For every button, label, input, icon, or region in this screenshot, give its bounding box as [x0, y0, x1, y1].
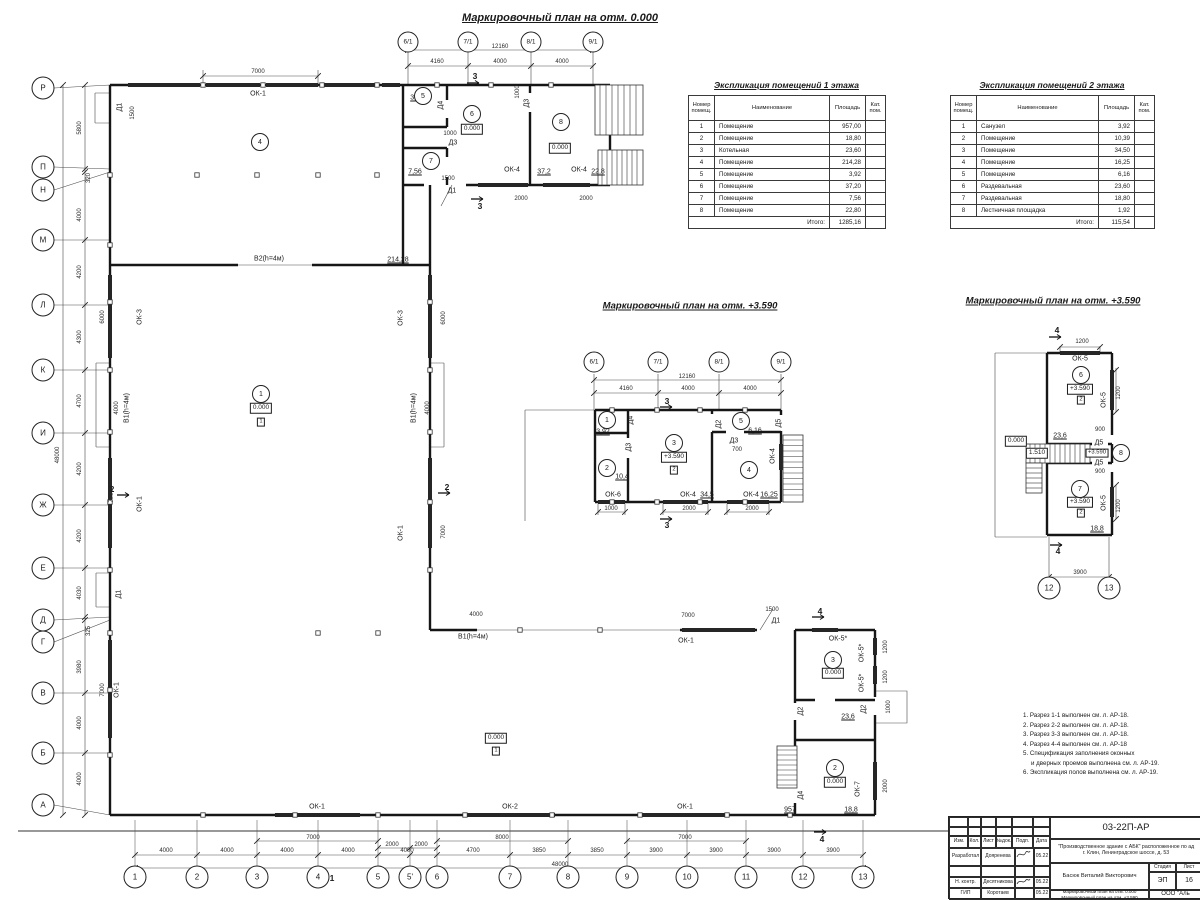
plan-label: Д5 [776, 419, 783, 428]
room-number-bubble: 8 [552, 113, 570, 131]
plan-label: 22,8 [591, 169, 605, 176]
table-row: 1Санузел3,92 [951, 121, 1155, 133]
plan-label: +3.590 [661, 452, 687, 463]
axis-bubble: 6/1 [584, 352, 605, 373]
axis-bubble: 11 [735, 866, 758, 889]
plan-label: 3900 [1073, 570, 1086, 576]
plan-label: 3900 [767, 848, 780, 854]
col-header: Площадь [830, 96, 866, 121]
plan-label: 1000 [515, 85, 521, 98]
note-line: 1. Разрез 1-1 выполнен см. л. АР-18. [1023, 711, 1200, 721]
plan-label: 214,28 [387, 257, 408, 264]
room-number-bubble: 3 [665, 434, 683, 452]
axis-bubble: И [32, 422, 55, 445]
axis-bubble: 8/1 [521, 32, 542, 53]
axis-bubble: П [32, 156, 55, 179]
plan-label: 18,8 [844, 807, 858, 814]
plan-label: 10,4 [615, 474, 629, 481]
plan-label: 0.000 [824, 777, 846, 788]
plan-label: 4160 [430, 59, 443, 65]
plan-label: 18,8 [1090, 526, 1104, 533]
plan-label: 1200 [1075, 339, 1088, 345]
plan-label: 4 [1055, 326, 1060, 335]
room-number-bubble: 4 [740, 461, 758, 479]
tb-drawing-title: Маркировочный план на отм. 0.000 Маркиро… [1049, 889, 1150, 900]
axis-bubble: 12 [1038, 577, 1061, 600]
plan-label: 320 [86, 173, 92, 183]
axis-bubble: 9 [616, 866, 639, 889]
plan-label: 1500 [441, 176, 454, 182]
plan-label: 3980 [77, 660, 83, 673]
plan-label: 6000 [100, 310, 106, 323]
plan-label: 23,6 [841, 714, 855, 721]
plan-label: 4160 [619, 386, 632, 392]
room-number-bubble: 3 [824, 651, 842, 669]
plan-label: 4000 [555, 59, 568, 65]
plan-label: 4000 [681, 386, 694, 392]
room-number-bubble: 7 [1071, 480, 1089, 498]
table-row: 7Раздевальная18,80 [951, 193, 1155, 205]
plan-label: 1000 [604, 506, 617, 512]
plan-label: ОК-4 [504, 167, 520, 174]
plan-label: 2 [445, 483, 450, 492]
plan-label: 7000 [441, 525, 447, 538]
note-line: и дверных проемов выполнена см. л. АР-19… [1023, 759, 1200, 769]
plan-label: 4000 [220, 848, 233, 854]
plan-label: 7000 [306, 835, 319, 841]
plan-label: 16,25 [760, 492, 778, 499]
axis-bubble: Б [32, 742, 55, 765]
plan-label: 4000 [341, 848, 354, 854]
plan-label: 34,5 [700, 492, 714, 499]
plan-label: 37,2 [537, 169, 551, 176]
plan-label: ОК-4 [743, 492, 759, 499]
tb-company: ООО "Аль [1148, 889, 1200, 900]
plan-label: 4 [820, 835, 825, 844]
note-line: 5. Спецификация заполнения оконных [1023, 749, 1200, 759]
axis-bubble: 8/1 [709, 352, 730, 373]
plan-label: 2000 [385, 842, 398, 848]
axis-bubble: 5' [399, 866, 422, 889]
plan-label: ОК-3 [398, 310, 405, 326]
axis-bubble: 3 [246, 866, 269, 889]
table-row: 2Помещение10,39 [951, 133, 1155, 145]
plan-label: 3 [665, 397, 670, 406]
plan-label: ОК-5 [1101, 495, 1108, 511]
table-header-row: Номер помещ. Наименование Площадь Кат. п… [951, 96, 1155, 121]
plan-label: 1000 [443, 131, 456, 137]
plan-label: 4700 [77, 394, 83, 407]
plan-label: 3900 [826, 848, 839, 854]
axis-bubble: 7/1 [648, 352, 669, 373]
plan-label: ОК-1 [678, 638, 694, 645]
plan-label: 2000 [745, 506, 758, 512]
plan-label: 1200 [1116, 499, 1122, 512]
title-block: Изм. Кол. Лист №док. Подп. Дата Разработ… [948, 816, 1200, 899]
table-row: 6Раздевальная23,60 [951, 181, 1155, 193]
plan-label: 4000 [77, 208, 83, 221]
plan-label: +3.590 [1067, 497, 1093, 508]
tb-role-gip: ГИП [949, 887, 982, 900]
plan-label: ОК-1 [250, 91, 266, 98]
plan-label: В1(h=4м) [458, 634, 488, 641]
plan-label: 1200 [883, 670, 889, 683]
plan-label: ОК-7 [855, 781, 862, 797]
plan-label: ОК-1 [309, 804, 325, 811]
plan-label: 2000 [579, 196, 592, 202]
col-header: Наименование [715, 96, 830, 121]
plan-label: 4000 [425, 401, 431, 414]
room-number-bubble: 4 [251, 133, 269, 151]
plan-label: 23,6 [1053, 433, 1067, 440]
plan-label: 7000 [681, 613, 694, 619]
table-header-row: Номер помещ. Наименование Площадь Кат. п… [689, 96, 886, 121]
plan-label: 2 [110, 485, 115, 494]
plan-label: 4 [818, 607, 823, 616]
total-value: 115,54 [1099, 217, 1135, 229]
plan-label: 3850 [590, 848, 603, 854]
table-row: 1Помещение957,00 [689, 121, 886, 133]
plan-label: 7000 [251, 69, 264, 75]
note-line: 4. Разрез 4-4 выполнен см. л. АР-18 [1023, 740, 1200, 750]
table-row: 3Котельная23,60 [689, 145, 886, 157]
tb-name-developer: Дояренева [980, 847, 1016, 867]
plan-label: Д3 [730, 438, 739, 445]
axis-bubble: 8 [557, 866, 580, 889]
plan-label: 900 [1095, 427, 1105, 433]
plan-label: 1.510 [1026, 448, 1048, 459]
axis-bubble: 13 [852, 866, 875, 889]
plan-label: 12160 [679, 374, 696, 380]
axis-bubble: В [32, 682, 55, 705]
col-header: Наименование [977, 96, 1099, 121]
col-header: Кат. пом. [1135, 96, 1155, 121]
schedule-floor2-title: Экспликация помещений 2 этажа [950, 80, 1154, 90]
col-header: Площадь [1099, 96, 1135, 121]
axis-bubble: 10 [676, 866, 699, 889]
plan-label: Д1 [116, 590, 123, 599]
plan-label: ОК-1 [398, 525, 405, 541]
total-value: 1285,16 [830, 217, 866, 229]
plan-label: ОК-1 [677, 804, 693, 811]
plan-label: ОК-5 [1072, 356, 1088, 363]
plan-label: 3 [478, 202, 483, 211]
table-row: 5Помещение3,92 [689, 169, 886, 181]
total-label: Итого: [689, 217, 830, 229]
plan-label: 2000 [682, 506, 695, 512]
note-line: 2. Разрез 2-2 выполнен см. л. АР-18. [1023, 721, 1200, 731]
plan-label: 4000 [159, 848, 172, 854]
tb-sheet-value: 16 [1175, 871, 1200, 891]
tb-role-developer: Разработал [949, 847, 982, 867]
plan-label: ОК-5* [859, 644, 866, 662]
plan-label: 7000 [100, 683, 106, 696]
table-row: 8Лестничная площадка1,92 [951, 205, 1155, 217]
col-header: Номер помещ. [689, 96, 715, 121]
table-row: 5Помещение6,16 [951, 169, 1155, 181]
axis-bubble: Л [32, 294, 55, 317]
plan-label: 7,56 [408, 169, 422, 176]
plan-label: 700 [732, 447, 742, 453]
plan-label: 1 [257, 418, 265, 427]
tb-document-code: 03-22П-АР [1049, 817, 1200, 840]
room-number-bubble: 1 [598, 411, 616, 429]
plan-label: 1500 [765, 607, 778, 613]
plan-label: 3 [665, 521, 670, 530]
plan-label: Д1 [117, 103, 124, 112]
plan-label: 2 [1077, 509, 1085, 518]
plan-label: ОК-4 [571, 167, 587, 174]
plan-label: Д2 [716, 420, 723, 429]
plan-label: Д4 [798, 791, 805, 800]
plan-label: 1200 [1116, 386, 1122, 399]
plan-label: Д1 [772, 618, 781, 625]
plan-label: 2 [1077, 396, 1085, 405]
plan-label: ОК-1 [114, 682, 121, 698]
axis-bubble: Г [32, 631, 55, 654]
room-number-bubble: 5 [414, 87, 432, 105]
axis-bubble: 9/1 [771, 352, 792, 373]
plan-label: ОК-2 [502, 804, 518, 811]
tb-author: Басюк Виталий Викторович [1049, 862, 1150, 891]
table-total-row: Итого: 115,54 [951, 217, 1155, 229]
plan-label: 0.000 [250, 403, 272, 414]
axis-bubble: К [32, 359, 55, 382]
plan-title-elev-0: Маркировочный план на отм. 0.000 [462, 12, 658, 24]
plan-label: 4000 [400, 848, 413, 854]
axis-bubble: 1 [124, 866, 147, 889]
plan-label: Д4 [628, 416, 635, 425]
plan-label: 2000 [514, 196, 527, 202]
table-total-row: Итого: 1285,16 [689, 217, 886, 229]
plan-label: Д2 [798, 707, 805, 716]
table-row: 4Помещение214,28 [689, 157, 886, 169]
signature-mark [1014, 847, 1035, 867]
plan-label: 957 [784, 807, 796, 814]
table-row: 4Помещение16,25 [951, 157, 1155, 169]
tb-project-name: "Производственное здание с АБК" располож… [1049, 838, 1200, 864]
plan-label: 0.000 [822, 668, 844, 679]
plan-label: 2000 [414, 842, 427, 848]
plan-label: 12160 [492, 44, 509, 50]
general-notes: 1. Разрез 1-1 выполнен см. л. АР-18.2. Р… [1023, 711, 1200, 778]
plan-label: 1200 [883, 640, 889, 653]
plan-label: 4300 [77, 330, 83, 343]
plan-label: Д3 [524, 99, 531, 108]
room-number-bubble: 8 [1112, 444, 1130, 462]
plan-label: Д4 [438, 101, 445, 110]
plan-label: Д2 [861, 705, 868, 714]
axis-bubble: 12 [792, 866, 815, 889]
room-number-bubble: 5 [732, 412, 750, 430]
schedule-floor1-title: Экспликация помещений 1 этажа [688, 80, 885, 90]
plan-label: 48000 [55, 447, 61, 464]
table-row: 3Помещение34,50 [951, 145, 1155, 157]
plan-label: 4000 [743, 386, 756, 392]
plan-label: 0.000 [461, 124, 483, 135]
plan-label: 3,92 [596, 429, 610, 436]
plan-label: 0.000 [1005, 436, 1027, 447]
plan-label: Д1 [448, 188, 457, 195]
table-row: 6Помещение37,20 [689, 181, 886, 193]
plan-label: +3.590 [1067, 384, 1093, 395]
plan-label: Д5 [1095, 460, 1104, 467]
plan-label: 1 [492, 747, 500, 756]
plan-label: 4700 [466, 848, 479, 854]
axis-bubble: 4 [307, 866, 330, 889]
plan-label: В1(h=4м) [124, 393, 131, 423]
room-number-bubble: 1 [252, 385, 270, 403]
plan-label: 3850 [532, 848, 545, 854]
room-number-bubble: 7 [422, 152, 440, 170]
room-number-bubble: 2 [598, 459, 616, 477]
plan-label: 7000 [678, 835, 691, 841]
plan-label: ОК-5* [829, 636, 847, 643]
axis-bubble: М [32, 229, 55, 252]
axis-bubble: 9/1 [583, 32, 604, 53]
plan-label: ОК-5 [1101, 392, 1108, 408]
tb-project-line2: г. Клин, Ленинградское шоссе, д. 53 [1083, 851, 1169, 857]
plan-label: Д3 [449, 140, 458, 147]
schedule-floor1: Экспликация помещений 1 этажа Номер поме… [688, 80, 885, 229]
axis-bubble: 7/1 [458, 32, 479, 53]
plan-label: 4200 [77, 462, 83, 475]
table-row: 8Помещение22,80 [689, 205, 886, 217]
total-label: Итого: [951, 217, 1099, 229]
axis-bubble: Р [32, 77, 55, 100]
axis-bubble: 2 [186, 866, 209, 889]
plan-title-elev-3590-mid: Маркировочный план на отм. +3.590 [603, 301, 778, 312]
room-number-bubble: 2 [826, 759, 844, 777]
plan-label: ОК-4 [680, 492, 696, 499]
plan-label: 2000 [883, 779, 889, 792]
plan-label: 3900 [709, 848, 722, 854]
axis-bubble: Н [32, 179, 55, 202]
plan-label: 3 [473, 72, 478, 81]
plan-label: 0.000 [485, 733, 507, 744]
table-row: 7Помещение7,56 [689, 193, 886, 205]
plan-label: В1(h=4м) [411, 393, 418, 423]
plan-label: 1000 [886, 700, 892, 713]
plan-label: 325 [86, 626, 92, 636]
plan-label: 0.000 [549, 143, 571, 154]
tb-stage-value: ЭП [1148, 871, 1177, 891]
col-header: Номер помещ. [951, 96, 977, 121]
plan-label: 4200 [77, 529, 83, 542]
note-line: 3. Разрез 3-3 выполнен см. л. АР-18. [1023, 730, 1200, 740]
plan-label: 2 [670, 466, 678, 475]
axis-bubble: Д [32, 609, 55, 632]
axis-bubble: 5 [367, 866, 390, 889]
plan-title-elev-3590-right: Маркировочный план на отм. +3.590 [966, 296, 1141, 307]
plan-label: 4000 [77, 716, 83, 729]
plan-label: 1500 [130, 106, 136, 119]
plan-label: 4200 [77, 265, 83, 278]
axis-bubble: Ж [32, 494, 55, 517]
plan-label: 900 [1095, 469, 1105, 475]
plan-label: 1 [330, 874, 335, 883]
axis-bubble: 7 [499, 866, 522, 889]
plan-label: 4000 [493, 59, 506, 65]
plan-label: 4000 [469, 612, 482, 618]
tb-name-gip: Коротаев [980, 887, 1016, 900]
plan-label: 4000 [280, 848, 293, 854]
axis-bubble: 13 [1098, 577, 1121, 600]
plan-label: ОК-3 [137, 309, 144, 325]
plan-label: ОК-4 [770, 448, 777, 464]
plan-label: 3900 [649, 848, 662, 854]
room-number-bubble: 6 [1072, 366, 1090, 384]
plan-label: 5800 [77, 121, 83, 134]
room-number-bubble: 6 [463, 105, 481, 123]
axis-bubble: А [32, 794, 55, 817]
plan-label: 4 [1056, 547, 1061, 556]
plan-label: ОК-1 [137, 496, 144, 512]
plan-label: ОК-5* [859, 674, 866, 692]
col-header: Кат. пом. [866, 96, 886, 121]
schedule-floor2: Экспликация помещений 2 этажа Номер поме… [950, 80, 1154, 229]
plan-label: 6000 [441, 311, 447, 324]
axis-bubble: Е [32, 557, 55, 580]
plan-label: ОК-6 [605, 492, 621, 499]
axis-bubble: 6/1 [398, 32, 419, 53]
axis-bubble: 6 [426, 866, 449, 889]
plan-label: 8000 [495, 835, 508, 841]
plan-label: Д5 [1095, 440, 1104, 447]
plan-label: +3.590 [1086, 449, 1109, 458]
plan-label: 4000 [114, 401, 120, 414]
plan-label: 6,16 [748, 428, 762, 435]
tb-drawing-title-line2: Маркировочный план на отм. +3.590 [1061, 895, 1137, 900]
plan-label: В2(h=4м) [254, 256, 284, 263]
table-row: 2Помещение18,80 [689, 133, 886, 145]
plan-label: Д3 [626, 443, 633, 452]
drawing-sheet: { "titles": { "main": "Маркировочный пла… [0, 0, 1200, 900]
plan-label: 4000 [77, 772, 83, 785]
note-line: 6. Экспликация полов выполнена см. л. АР… [1023, 768, 1200, 778]
plan-label: 4030 [77, 586, 83, 599]
